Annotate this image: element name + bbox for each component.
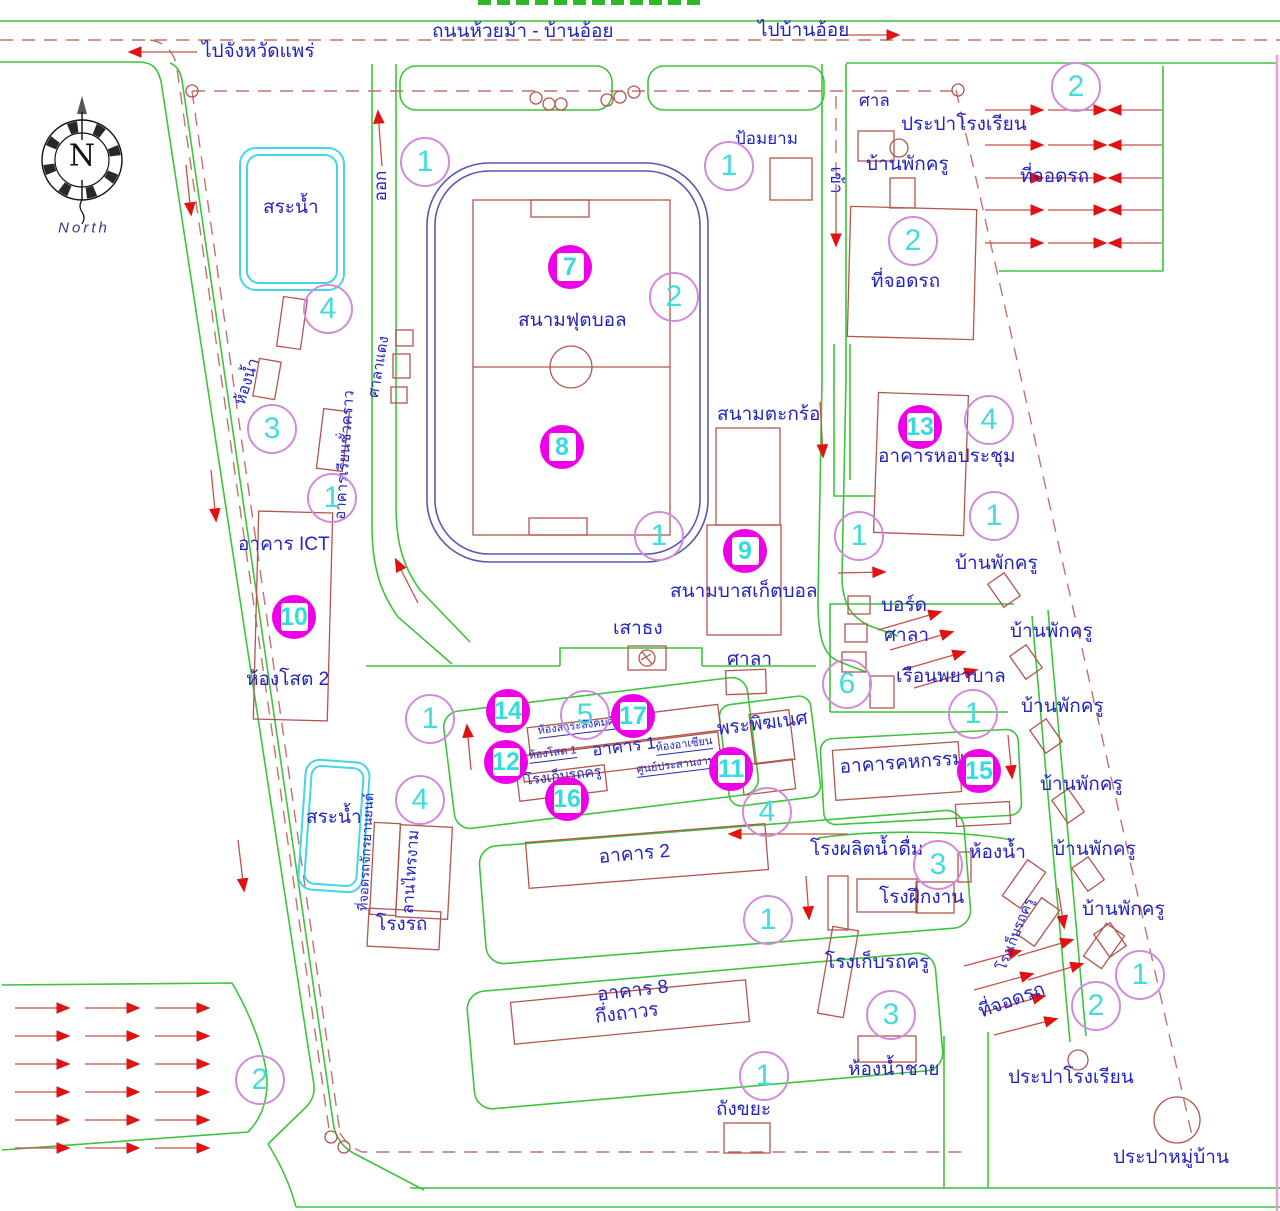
label-teacher-garage-2: โรงเก็บรถครู bbox=[825, 953, 929, 973]
label-trash-bin: ถังขยะ bbox=[716, 1100, 771, 1120]
label-teacher-house-2: บ้านพักครู bbox=[1010, 622, 1093, 642]
marker-out-4-5: 4 bbox=[303, 284, 353, 334]
marker-number: 6 bbox=[839, 667, 856, 701]
marker-fill-17-6: 17 bbox=[611, 694, 655, 738]
marker-out-2-2: 2 bbox=[1051, 62, 1101, 112]
label-takraw-court: สนามตะกร้อ bbox=[717, 405, 820, 425]
marker-out-1-7: 1 bbox=[307, 473, 357, 523]
label-assembly-hall: อาคารหอประชุม bbox=[878, 447, 1016, 467]
label-flagpole: เสาธง bbox=[613, 619, 663, 639]
label-football-field: สนามฟุตบอล bbox=[518, 311, 627, 331]
marker-number: 13 bbox=[906, 413, 934, 442]
marker-fill-9-2: 9 bbox=[723, 529, 767, 573]
running-track bbox=[427, 163, 708, 562]
marker-out-2-4: 2 bbox=[649, 272, 699, 322]
marker-number: 4 bbox=[759, 795, 776, 829]
marker-number: 5 bbox=[577, 698, 594, 732]
label-teacher-house-6: บ้านพักครู bbox=[1082, 900, 1165, 920]
marker-number: 2 bbox=[1088, 989, 1105, 1023]
marker-number: 8 bbox=[555, 433, 569, 462]
label-parking-block: ที่จอดรถ bbox=[871, 272, 940, 292]
label-teacher-house-5: บ้านพักครู bbox=[1053, 840, 1136, 860]
label-teacher-house-3: บ้านพักครู bbox=[1021, 697, 1104, 717]
marker-number: 4 bbox=[412, 783, 429, 817]
label-village-waterworks: ประปาหมู่บ้าน bbox=[1113, 1148, 1229, 1168]
marker-number: 12 bbox=[492, 748, 520, 777]
label-teacher-house-1: บ้านพักครู bbox=[955, 554, 1038, 574]
label-mens-toilet: ห้องน้ำชาย bbox=[848, 1060, 940, 1080]
marker-number: 2 bbox=[1068, 70, 1085, 104]
marker-out-5-15: 5 bbox=[560, 690, 610, 740]
label-basketball-court: สนามบาสเก็ตบอล bbox=[670, 582, 818, 602]
label-carport: โรงรถ bbox=[376, 915, 427, 935]
label-teacher-house-4: บ้านพักครู bbox=[1040, 775, 1123, 795]
label-pond-lower: สระน้ำ bbox=[306, 808, 362, 828]
marker-number: 7 bbox=[563, 253, 577, 282]
label-water-plant: โรงผลิตน้ำดื่ม bbox=[810, 840, 923, 860]
label-ict-building: อาคาร ICT bbox=[238, 535, 330, 555]
marker-number: 4 bbox=[981, 403, 998, 437]
compass-north-caption: North bbox=[58, 220, 110, 237]
marker-fill-10-3: 10 bbox=[272, 595, 316, 639]
marker-out-1-13: 1 bbox=[948, 689, 998, 739]
marker-number: 2 bbox=[905, 224, 922, 258]
marker-number: 2 bbox=[666, 280, 683, 314]
label-teacher-house-top: บ้านพักครู bbox=[866, 155, 949, 175]
marker-number: 11 bbox=[718, 755, 744, 784]
marker-out-1-8: 1 bbox=[634, 511, 684, 561]
marker-out-1-10: 1 bbox=[969, 491, 1019, 541]
ponds bbox=[240, 148, 370, 893]
label-infirmary: เรือนพยาบาล bbox=[896, 667, 1006, 687]
label-guard-post: ป้อมยาม bbox=[735, 130, 798, 148]
marker-fill-15-10: 15 bbox=[957, 749, 1001, 793]
label-workshop: โรงฝึกงาน bbox=[879, 888, 964, 908]
label-pavilion-right: ศาลา bbox=[884, 626, 929, 646]
marker-out-1-23: 1 bbox=[1115, 950, 1165, 1000]
marker-number: 17 bbox=[619, 702, 647, 731]
marker-number: 1 bbox=[721, 149, 738, 183]
marker-number: 3 bbox=[264, 412, 281, 446]
marker-out-1-20: 1 bbox=[739, 1051, 789, 1101]
label-to-phrae: ไปจังหวัดแพร่ bbox=[202, 42, 315, 62]
marker-number: 1 bbox=[651, 519, 668, 553]
label-toilet-right: ห้องน้ำ bbox=[969, 843, 1026, 863]
label-enter: เข้า bbox=[827, 167, 845, 194]
marker-number: 15 bbox=[965, 757, 993, 786]
label-pond-top: สระน้ำ bbox=[263, 198, 319, 218]
marker-out-4-17: 4 bbox=[395, 775, 445, 825]
marker-out-1-11: 1 bbox=[834, 511, 884, 561]
marker-out-1-18: 1 bbox=[743, 895, 793, 945]
marker-fill-12-7: 12 bbox=[484, 740, 528, 784]
campus-map: N North ถนนห้วยม้า - บ้านอ้อยไปบ้านอ้อยไ… bbox=[0, 0, 1280, 1211]
label-av-room-2: ห้องโสต 2 bbox=[246, 670, 329, 690]
marker-fill-14-5: 14 bbox=[486, 689, 530, 733]
marker-out-4-16: 4 bbox=[742, 787, 792, 837]
marker-number: 3 bbox=[930, 848, 947, 882]
marker-out-3-21: 3 bbox=[866, 990, 916, 1040]
marker-out-2-24: 2 bbox=[235, 1055, 285, 1105]
marker-number: 1 bbox=[965, 697, 982, 731]
marker-out-1-1: 1 bbox=[704, 141, 754, 191]
marker-out-2-22: 2 bbox=[1071, 981, 1121, 1031]
marker-out-6-12: 6 bbox=[822, 659, 872, 709]
marker-number: 16 bbox=[553, 785, 581, 814]
label-school-waterworks-top: ประปาโรงเรียน bbox=[901, 115, 1027, 135]
marker-number: 1 bbox=[422, 702, 439, 736]
marker-number: 1 bbox=[756, 1059, 773, 1093]
marker-fill-8-1: 8 bbox=[540, 425, 584, 469]
marker-number: 14 bbox=[494, 697, 522, 726]
marker-number: 1 bbox=[760, 903, 777, 937]
marker-fill-16-9: 16 bbox=[545, 777, 589, 821]
marker-number: 2 bbox=[252, 1063, 269, 1097]
marker-out-3-6: 3 bbox=[247, 404, 297, 454]
marker-number: 9 bbox=[738, 537, 752, 566]
marker-out-1-0: 1 bbox=[400, 137, 450, 187]
marker-out-2-3: 2 bbox=[888, 216, 938, 266]
marker-number: 1 bbox=[1132, 958, 1149, 992]
compass-n-letter: N bbox=[69, 139, 95, 174]
marker-fill-13-4: 13 bbox=[898, 405, 942, 449]
label-shrine: ศาล bbox=[859, 92, 890, 110]
cropped-title-remnant bbox=[478, 0, 700, 5]
marker-number: 10 bbox=[280, 603, 308, 632]
label-to-ban-oi: ไปบ้านอ้อย bbox=[758, 21, 849, 41]
label-school-waterworks-bottom: ประปาโรงเรียน bbox=[1008, 1068, 1134, 1088]
marker-fill-11-8: 11 bbox=[709, 747, 753, 791]
marker-number: 4 bbox=[320, 292, 337, 326]
marker-number: 1 bbox=[986, 499, 1003, 533]
label-road-huai-ma: ถนนห้วยม้า - บ้านอ้อย bbox=[432, 22, 614, 42]
marker-out-1-14: 1 bbox=[405, 694, 455, 744]
label-exit: ออก bbox=[372, 171, 390, 202]
marker-fill-7-0: 7 bbox=[548, 245, 592, 289]
label-pavilion-mid: ศาลา bbox=[727, 650, 772, 670]
marker-out-4-9: 4 bbox=[964, 395, 1014, 445]
marker-number: 1 bbox=[851, 519, 868, 553]
marker-out-3-19: 3 bbox=[913, 840, 963, 890]
marker-number: 1 bbox=[324, 481, 341, 515]
marker-number: 1 bbox=[417, 145, 434, 179]
label-parking-top-right: ที่จอดรถ bbox=[1020, 167, 1089, 187]
marker-number: 3 bbox=[883, 998, 900, 1032]
buildings bbox=[186, 84, 1200, 1153]
label-board: บอร์ด bbox=[881, 596, 927, 616]
